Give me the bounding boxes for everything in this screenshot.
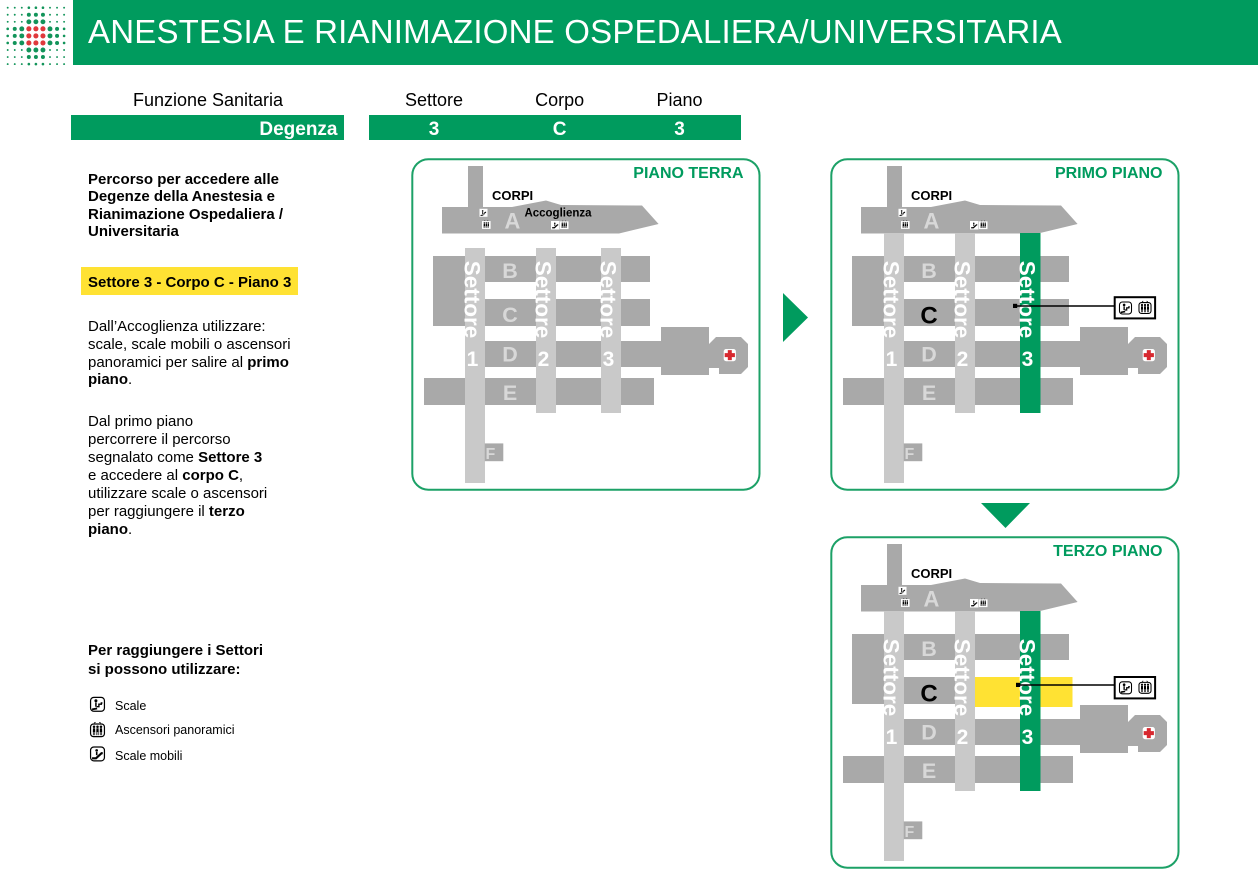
svg-text:D: D <box>921 721 937 745</box>
svg-text:B: B <box>921 259 937 283</box>
svg-text:A: A <box>924 587 940 612</box>
svg-text:CORPI: CORPI <box>911 566 952 581</box>
svg-text:Settore: Settore <box>950 261 975 339</box>
svg-text:E: E <box>503 381 517 405</box>
svg-text:B: B <box>502 259 518 283</box>
svg-text:Settore: Settore <box>1015 639 1040 717</box>
svg-text:A: A <box>505 209 521 234</box>
svg-text:F: F <box>905 446 915 463</box>
svg-text:B: B <box>921 637 937 661</box>
svg-text:1: 1 <box>886 348 898 371</box>
svg-text:1: 1 <box>467 348 479 371</box>
svg-text:3: 3 <box>1022 726 1034 749</box>
svg-text:Settore: Settore <box>950 639 975 717</box>
svg-text:C: C <box>502 303 518 327</box>
svg-text:2: 2 <box>957 726 969 749</box>
svg-text:TERZO PIANO: TERZO PIANO <box>1053 543 1162 560</box>
svg-text:PRIMO PIANO: PRIMO PIANO <box>1055 165 1163 182</box>
svg-text:2: 2 <box>538 348 550 371</box>
svg-text:A: A <box>924 209 940 234</box>
svg-text:2: 2 <box>957 348 969 371</box>
svg-text:D: D <box>502 343 518 367</box>
svg-text:Settore: Settore <box>460 261 485 339</box>
svg-text:F: F <box>486 446 496 463</box>
svg-text:E: E <box>922 381 936 405</box>
svg-text:Settore: Settore <box>596 261 621 339</box>
svg-text:CORPI: CORPI <box>911 188 952 203</box>
svg-text:3: 3 <box>1022 348 1034 371</box>
svg-text:Settore: Settore <box>879 261 904 339</box>
svg-text:D: D <box>921 343 937 367</box>
svg-text:PIANO TERRA: PIANO TERRA <box>633 165 744 182</box>
svg-text:C: C <box>920 681 937 708</box>
svg-text:C: C <box>920 303 937 330</box>
svg-text:Accoglienza: Accoglienza <box>524 208 592 220</box>
svg-text:F: F <box>905 824 915 841</box>
svg-text:E: E <box>922 759 936 783</box>
svg-text:1: 1 <box>886 726 898 749</box>
svg-text:3: 3 <box>603 348 615 371</box>
svg-text:CORPI: CORPI <box>492 188 533 203</box>
svg-text:Settore: Settore <box>879 639 904 717</box>
svg-text:Settore: Settore <box>531 261 556 339</box>
svg-text:Settore: Settore <box>1015 261 1040 339</box>
